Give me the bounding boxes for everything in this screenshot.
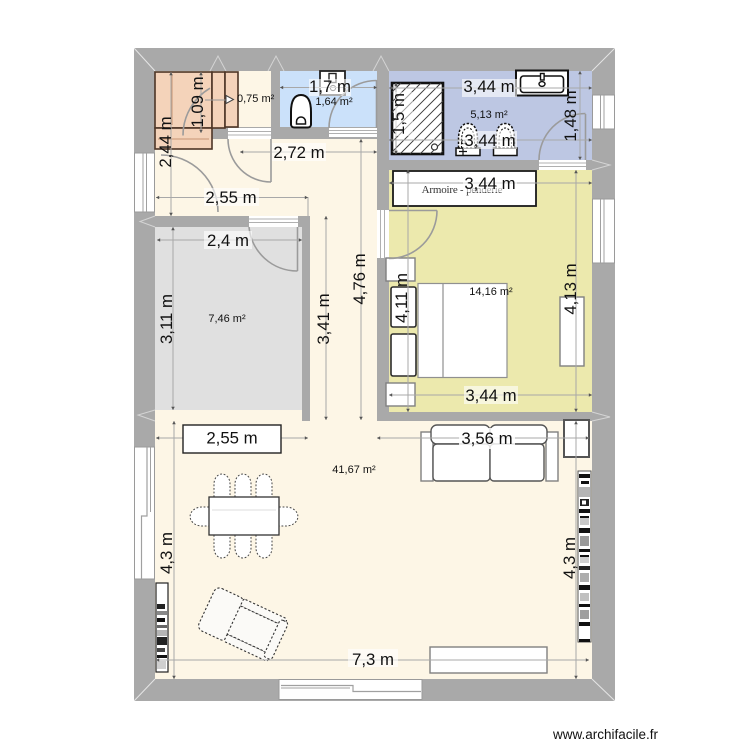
svg-text:1,64 m²: 1,64 m² xyxy=(315,96,353,108)
svg-text:1,7 m: 1,7 m xyxy=(309,77,351,96)
svg-text:4,76 m: 4,76 m xyxy=(350,253,369,304)
svg-text:4,13 m: 4,13 m xyxy=(561,263,580,314)
svg-text:2,44 m: 2,44 m xyxy=(156,116,175,167)
svg-text:3,56 m: 3,56 m xyxy=(461,429,512,448)
svg-text:0,75 m²: 0,75 m² xyxy=(237,93,275,105)
svg-text:3,44 m: 3,44 m xyxy=(463,77,514,96)
svg-text:5,13 m²: 5,13 m² xyxy=(470,109,508,121)
svg-text:4,3 m: 4,3 m xyxy=(560,537,579,579)
svg-text:3,41 m: 3,41 m xyxy=(314,293,333,344)
svg-text:2,4 m: 2,4 m xyxy=(207,231,249,250)
svg-text:3,44 m: 3,44 m xyxy=(464,131,515,150)
svg-text:4,3 m: 4,3 m xyxy=(157,532,176,574)
svg-text:7,46 m²: 7,46 m² xyxy=(208,313,246,325)
svg-text:3,44 m: 3,44 m xyxy=(464,174,515,193)
svg-text:3,44 m: 3,44 m xyxy=(465,386,516,405)
svg-text:3,11 m: 3,11 m xyxy=(157,294,176,344)
svg-text:2,72 m: 2,72 m xyxy=(273,143,324,162)
svg-text:7,3 m: 7,3 m xyxy=(352,650,394,669)
svg-text:www.archifacile.fr: www.archifacile.fr xyxy=(552,727,659,742)
svg-text:2,55 m: 2,55 m xyxy=(206,429,257,448)
svg-text:2,55 m: 2,55 m xyxy=(205,188,256,207)
svg-text:1,48 m: 1,48 m xyxy=(561,90,580,141)
svg-text:41,67 m²: 41,67 m² xyxy=(332,464,376,476)
svg-text:1,5 m: 1,5 m xyxy=(389,93,408,135)
svg-text:1,09 m: 1,09 m xyxy=(188,76,207,127)
svg-text:4,11 m: 4,11 m xyxy=(392,273,411,323)
svg-text:14,16 m²: 14,16 m² xyxy=(469,286,513,298)
